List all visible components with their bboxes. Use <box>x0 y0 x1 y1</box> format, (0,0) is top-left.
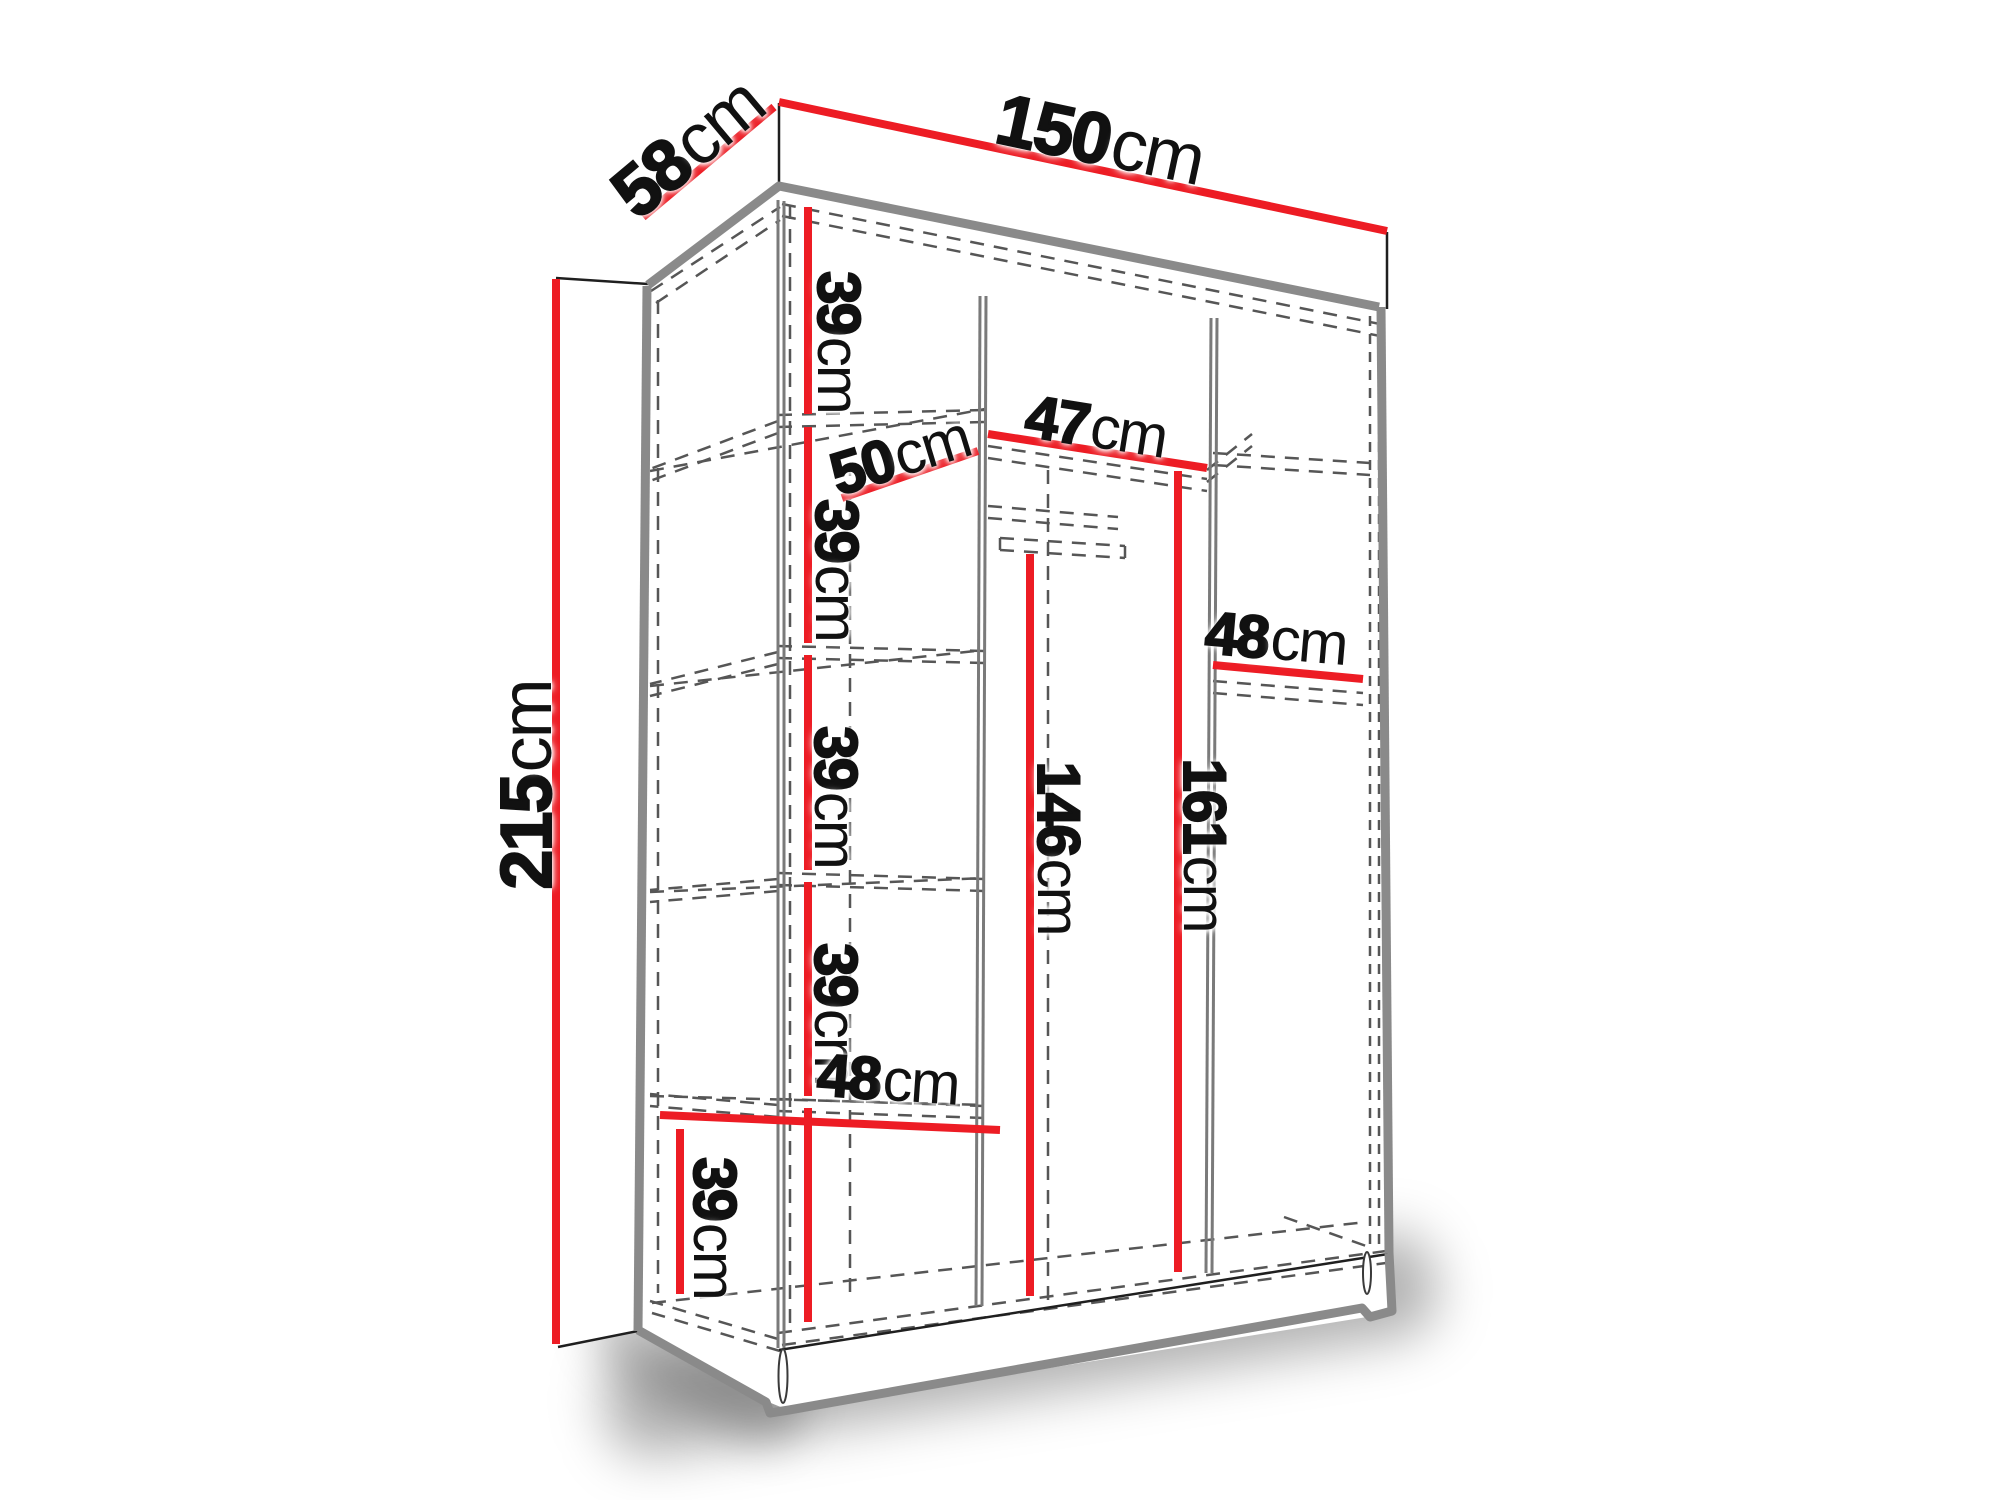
wardrobe-line-art <box>0 0 2000 1500</box>
dim-label-shelf-39-1: 39cm <box>808 271 868 413</box>
dim-label-height-161: 161cm <box>1174 758 1234 931</box>
wardrobe-dimension-diagram: 58cm 150cm 215cm 39cm 39cm 39cm 39cm 39c… <box>0 0 2000 1500</box>
dim-label-width-48-left: 48cm <box>815 1045 961 1115</box>
dim-label-shelf-39-5: 39cm <box>684 1157 744 1299</box>
dim-label-height-215: 215cm <box>491 680 563 889</box>
dim-label-shelf-39-3: 39cm <box>805 726 865 868</box>
dim-label-width-48-right: 48cm <box>1203 603 1349 675</box>
dim-label-height-146: 146cm <box>1028 761 1088 934</box>
dim-label-shelf-39-2: 39cm <box>806 499 866 641</box>
